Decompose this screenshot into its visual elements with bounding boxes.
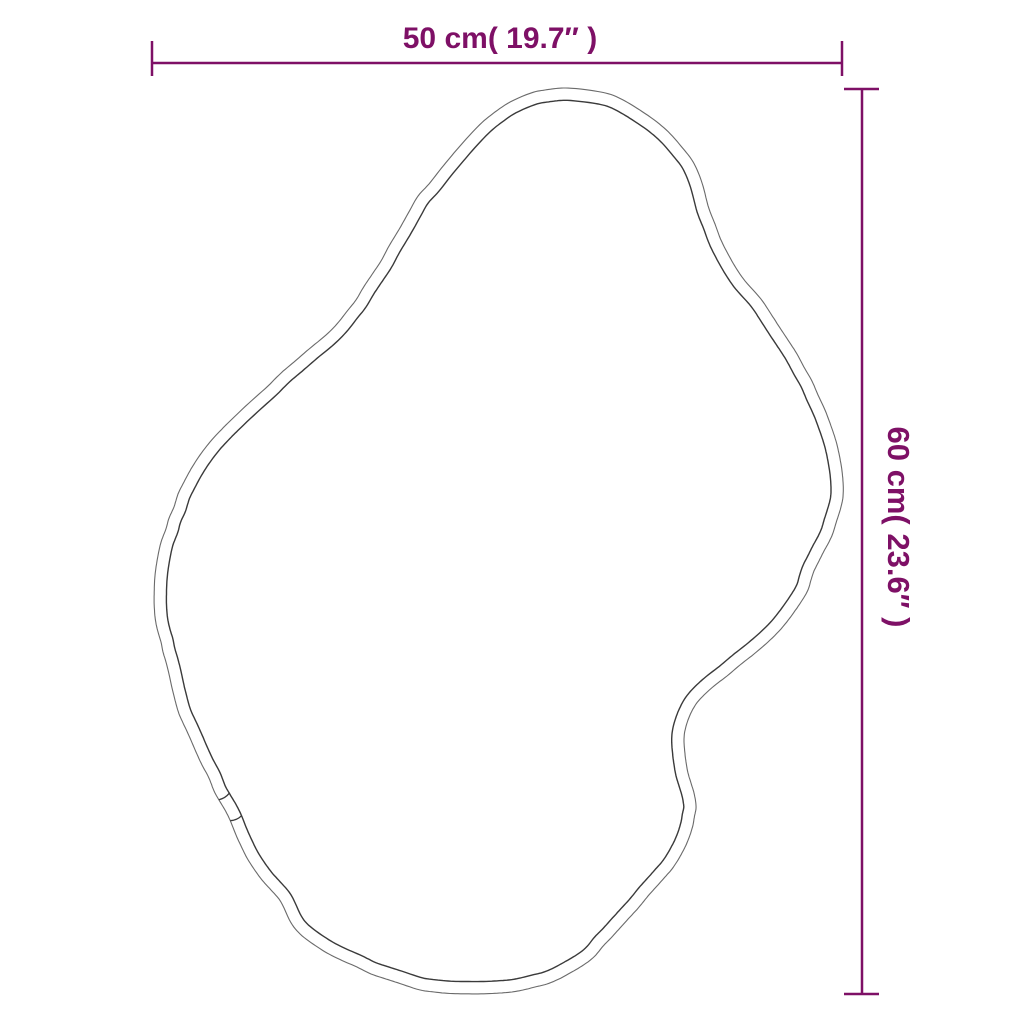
svg-text:60 cm( 23.6″ ): 60 cm( 23.6″ ) <box>881 427 916 628</box>
svg-text:50 cm( 19.7″ ): 50 cm( 19.7″ ) <box>403 22 597 55</box>
